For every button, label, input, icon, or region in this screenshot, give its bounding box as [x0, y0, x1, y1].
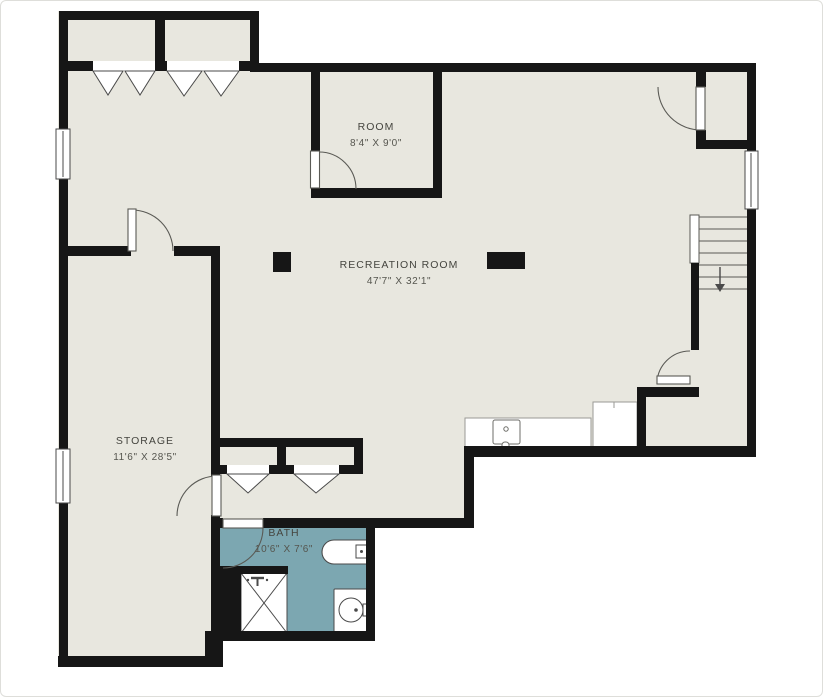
toilet-flush-icon — [354, 608, 358, 612]
counter-sink — [493, 420, 520, 444]
floor-plan-canvas: ROOM 8'4" X 9'0" RECREATION ROOM 47'7" X… — [0, 0, 823, 697]
wall-top-main — [250, 63, 756, 72]
wall-left-mid — [59, 179, 68, 449]
wall-closet-stub-left — [59, 61, 93, 71]
support-column — [273, 252, 291, 272]
floor-footprint — [58, 11, 756, 667]
wall-bath-top-stub — [211, 518, 223, 528]
floor-plan-drawing — [1, 1, 823, 697]
wall-shower-top — [241, 566, 288, 574]
wall-tr-closet-bottom — [696, 140, 756, 149]
wall-closet-stub-mid — [155, 61, 167, 71]
wall-closet-stub-right — [239, 61, 259, 71]
tr-closet-door-leaf — [696, 87, 705, 130]
wall-room-right — [433, 63, 442, 198]
toilet-bowl — [339, 598, 363, 622]
shower-knob-icon — [266, 579, 268, 581]
corridor-door-leaf — [657, 376, 690, 384]
wall-right-lower — [747, 209, 756, 457]
wall-left-bottom — [59, 503, 68, 667]
wall-tr-closet-left-upper — [696, 63, 706, 87]
wall-bottom-right — [464, 446, 756, 457]
wall-hall-closets-top — [211, 438, 363, 447]
wall-step-vertical — [464, 448, 474, 528]
storage-top-door-leaf — [128, 209, 136, 251]
shower-knob-icon — [247, 579, 249, 581]
closet-opening — [167, 61, 239, 71]
wall-bath-left-thick — [211, 566, 241, 633]
appliance-cabinet — [593, 402, 637, 447]
wall-hall-closet-stub3 — [339, 465, 363, 474]
bath-door-leaf — [223, 519, 263, 528]
wall-storage-bottom — [58, 656, 223, 667]
wall-storage-top-left — [59, 246, 131, 256]
wall-room-left — [311, 63, 320, 151]
wall-room-bottom — [311, 188, 442, 198]
wall-hall-closet-stub1 — [211, 465, 227, 474]
wall-closet-divider — [155, 11, 165, 69]
room-door-leaf — [311, 151, 320, 188]
storage-side-door-leaf — [212, 475, 221, 516]
closet-opening — [294, 465, 339, 474]
wall-bath-right — [366, 518, 375, 641]
wall-stair-corridor — [691, 263, 699, 350]
wall-nook-top — [637, 387, 699, 397]
counter — [465, 418, 591, 448]
bathtub-drain-icon — [360, 550, 363, 553]
closet-opening — [93, 61, 155, 71]
wall-bottom-mid — [366, 518, 474, 528]
wall-hall-closet-stub2 — [269, 465, 294, 474]
floor-fill — [58, 11, 756, 667]
wall-bath-top-right — [263, 518, 366, 528]
closet-opening — [227, 465, 269, 474]
support-column-wide — [487, 252, 525, 269]
stair-rail — [690, 215, 699, 263]
wall-right-upper — [747, 63, 756, 151]
wall-nook-left — [637, 387, 646, 448]
